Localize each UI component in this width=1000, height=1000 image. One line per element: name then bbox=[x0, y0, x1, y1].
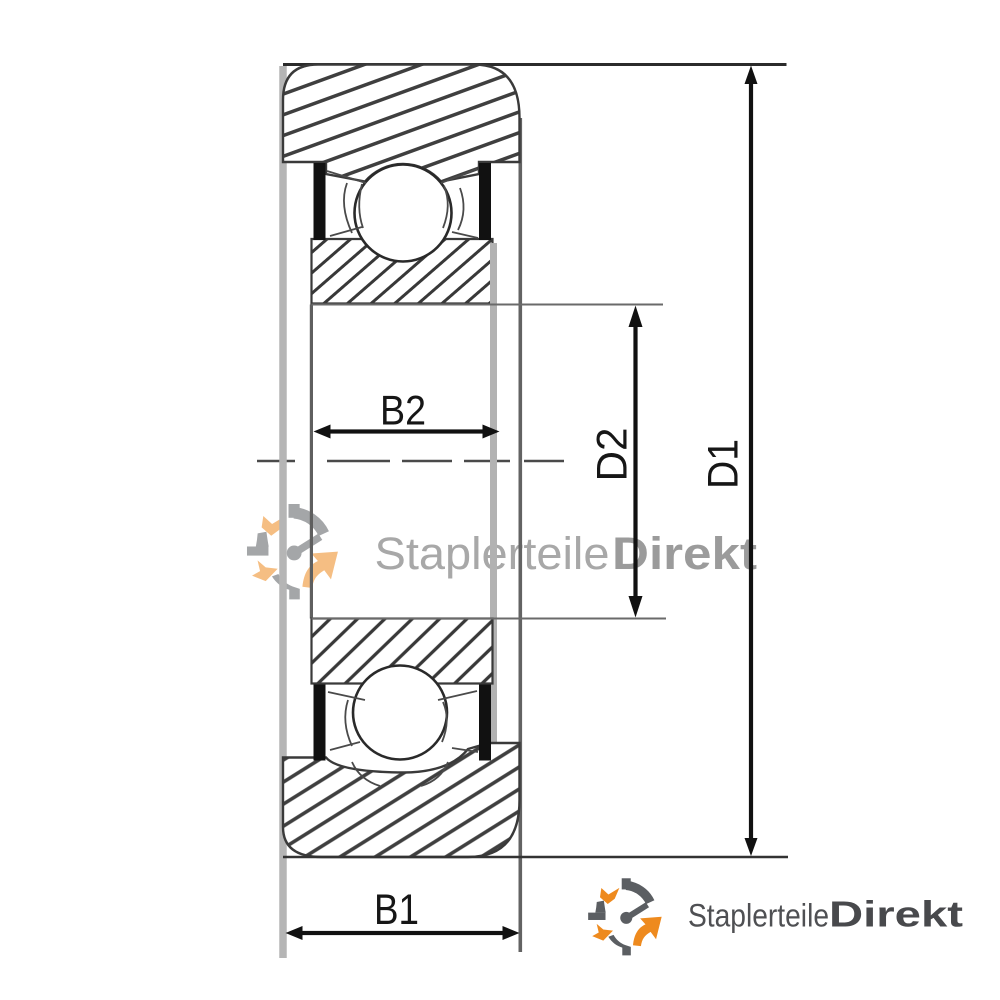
svg-text:B2: B2 bbox=[380, 387, 426, 434]
svg-text:D1: D1 bbox=[700, 439, 748, 489]
svg-text:Staplerteile: Staplerteile bbox=[688, 898, 829, 934]
svg-text:D2: D2 bbox=[589, 428, 637, 482]
svg-text:B1: B1 bbox=[374, 886, 419, 934]
svg-text:Direkt: Direkt bbox=[829, 894, 963, 935]
